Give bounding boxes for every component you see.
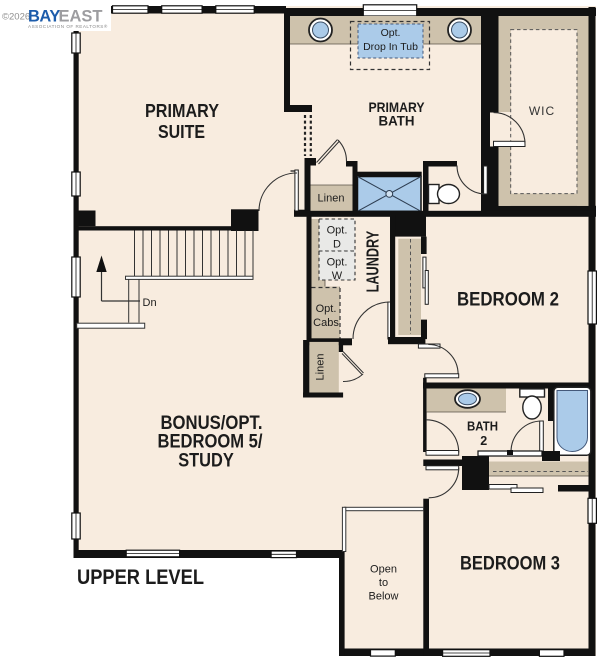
svg-text:D: D [333,239,341,251]
svg-text:Cabs: Cabs [313,317,339,329]
svg-text:Drop In Tub: Drop In Tub [363,41,418,53]
svg-text:2: 2 [480,434,487,448]
svg-text:Dn: Dn [143,297,157,309]
svg-text:Opt.: Opt. [327,225,348,237]
svg-text:WIC: WIC [529,104,555,118]
svg-text:Open: Open [370,564,397,576]
svg-text:LAUNDRY: LAUNDRY [363,231,383,293]
svg-text:Opt.: Opt. [316,303,337,315]
svg-text:Linen: Linen [318,193,345,205]
svg-text:to: to [379,577,388,589]
svg-text:Opt.: Opt. [327,257,348,269]
svg-text:BATH: BATH [379,113,415,129]
svg-text:©2026: ©2026 [2,12,30,23]
svg-text:Linen: Linen [315,354,327,381]
svg-text:BAY: BAY [28,8,60,26]
svg-text:BEDROOM 2: BEDROOM 2 [457,289,559,311]
svg-text:SUITE: SUITE [158,122,205,142]
svg-text:EAST: EAST [59,8,103,26]
svg-text:Below: Below [369,591,399,603]
svg-text:W: W [332,270,343,282]
svg-text:UPPER LEVEL: UPPER LEVEL [77,565,204,589]
svg-text:BATH: BATH [467,420,498,434]
svg-text:PRIMARY: PRIMARY [145,101,219,121]
svg-text:ASSOCIATION OF REALTORS®: ASSOCIATION OF REALTORS® [28,23,108,29]
svg-text:Opt.: Opt. [381,27,401,39]
svg-text:STUDY: STUDY [178,450,234,472]
svg-text:BEDROOM 3: BEDROOM 3 [460,553,560,575]
